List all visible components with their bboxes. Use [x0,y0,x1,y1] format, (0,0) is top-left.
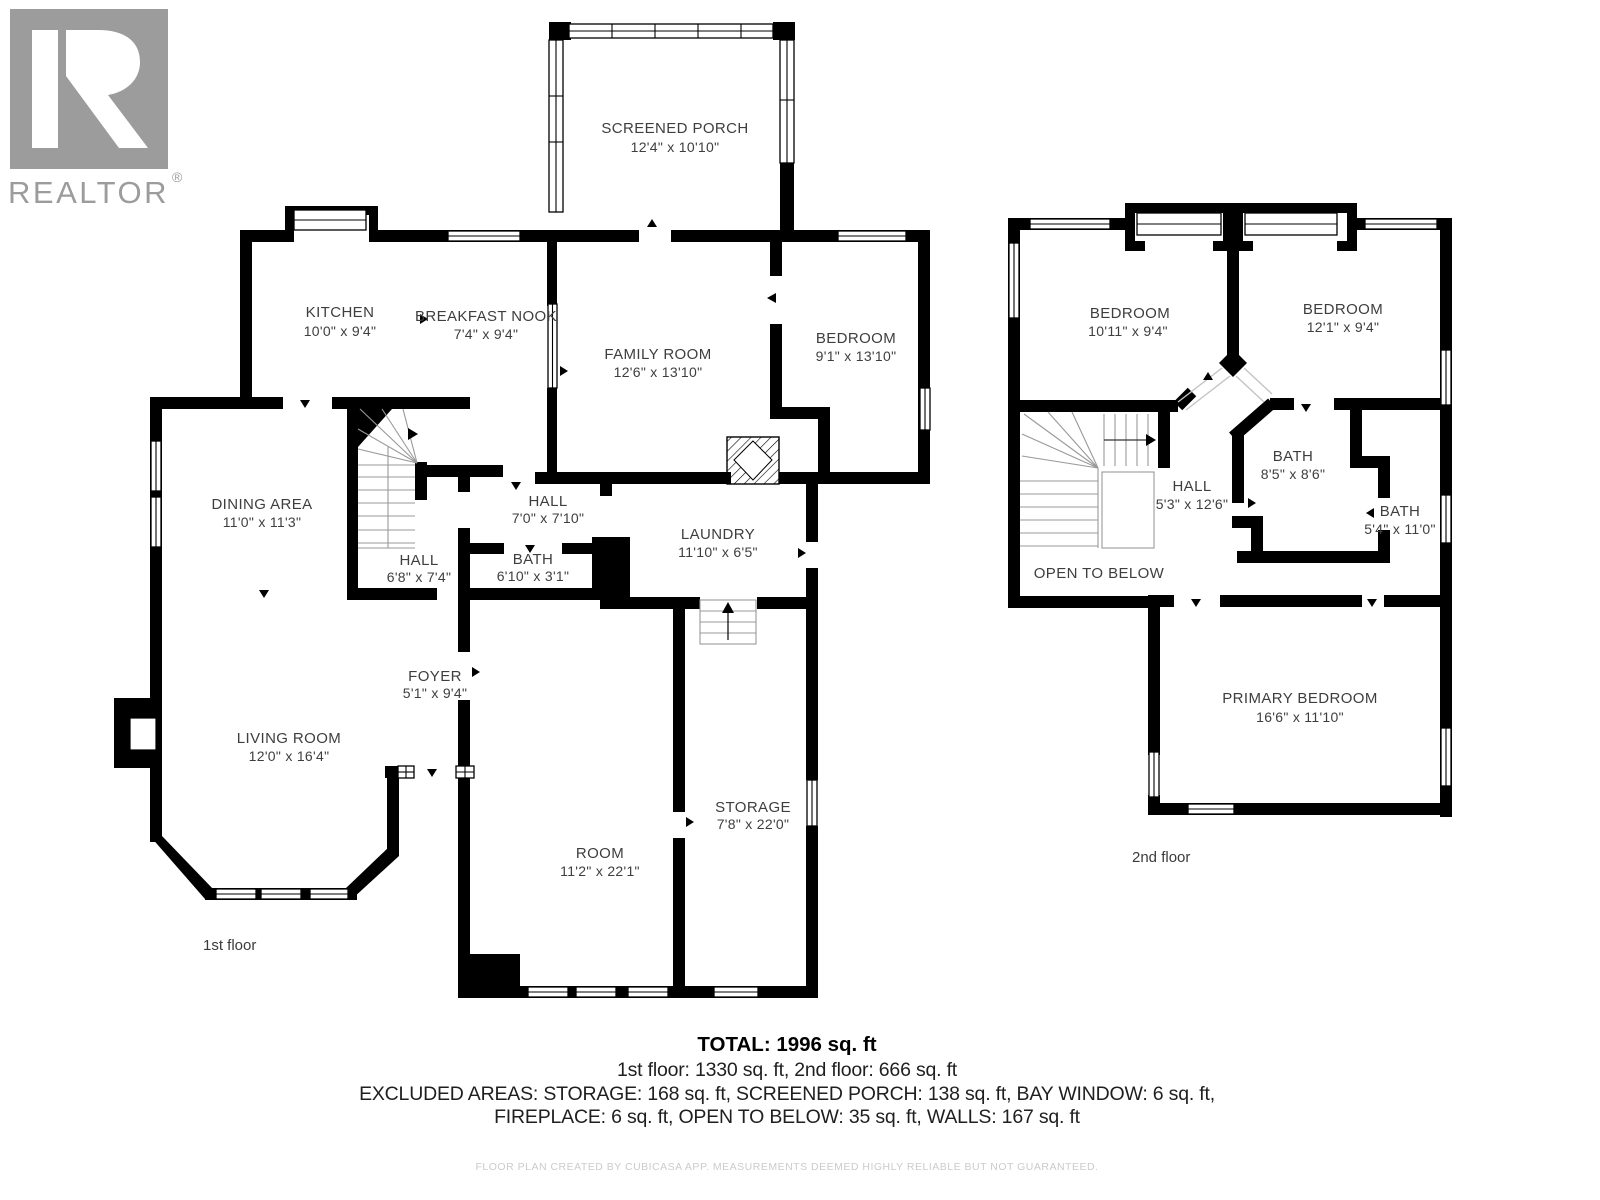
floor-plan-page: REALTOR ® [0,0,1600,1200]
room-label-storage: STORAGE [715,799,791,816]
realtor-logo: REALTOR ® [8,9,183,210]
room-dims-family-room: 12'6" x 13'10" [614,364,703,380]
room-label-living-room: LIVING ROOM [237,730,341,747]
room-dims-bath2-main: 8'5" x 8'6" [1261,466,1326,482]
room-dims-room: 11'2" x 22'1" [560,863,640,879]
room-label-bedroom-1f: BEDROOM [816,330,896,347]
room-dims-hall-center: 7'0" x 7'10" [512,510,585,526]
summary-floors: 1st floor: 1330 sq. ft, 2nd floor: 666 s… [617,1059,958,1081]
room-dims-living-room: 12'0" x 16'4" [249,748,330,764]
floor2-room-labels: BEDROOM 10'11" x 9'4" BEDROOM 12'1" x 9'… [1034,301,1436,866]
summary-excluded-line2: FIREPLACE: 6 sq. ft, OPEN TO BELOW: 35 s… [494,1106,1081,1128]
room-label-open-to-below: OPEN TO BELOW [1034,565,1165,582]
room-label-family-room: FAMILY ROOM [604,346,711,363]
room-label-screened-porch: SCREENED PORCH [601,120,748,137]
room-label-breakfast-nook: BREAKFAST NOOK [415,308,557,325]
room-label-hall2: HALL [1172,478,1211,495]
room-dims-bath2-right: 5'4" x 11'0" [1364,521,1436,537]
summary-total: TOTAL: 1996 sq. ft [697,1033,876,1056]
room-dims-kitchen: 10'0" x 9'4" [304,323,377,339]
floor2-diagonal-openings [1178,368,1272,410]
room-label-bedroom2-left: BEDROOM [1090,305,1170,322]
summary-excluded-line1: EXCLUDED AREAS: STORAGE: 168 sq. ft, SCR… [359,1083,1215,1105]
room-label-laundry: LAUNDRY [681,526,755,543]
room-label-bedroom2-right: BEDROOM [1303,301,1383,318]
room-dims-storage: 7'8" x 22'0" [717,816,790,832]
room-dims-bath-1f: 6'10" x 3'1" [497,568,570,584]
room-label-primary-bedroom: PRIMARY BEDROOM [1222,690,1377,707]
room-dims-breakfast-nook: 7'4" x 9'4" [454,326,519,342]
room-label-room: ROOM [576,845,624,862]
realtor-logo-text: REALTOR [8,175,169,210]
room-label-kitchen: KITCHEN [306,304,375,321]
room-label-dining-area: DINING AREA [211,496,312,513]
room-label-hall-stairs: HALL [399,552,438,569]
floor1-label: 1st floor [203,937,256,954]
room-dims-bedroom2-left: 10'11" x 9'4" [1088,323,1168,339]
room-dims-dining-area: 11'0" x 11'3" [223,514,302,530]
room-dims-hall-stairs: 6'8" x 7'4" [387,569,452,585]
disclaimer-text: FLOOR PLAN CREATED BY CUBICASA APP. MEAS… [476,1161,1099,1173]
laundry-steps-icon [700,600,756,644]
room-label-bath2-main: BATH [1273,448,1314,465]
room-label-bath2-right: BATH [1380,503,1421,520]
room-dims-foyer: 5'1" x 9'4" [403,685,468,701]
room-dims-primary-bedroom: 16'6" x 11'10" [1256,709,1344,725]
room-label-bath-1f: BATH [513,551,554,568]
registered-mark: ® [172,169,183,185]
floor-plan-canvas: REALTOR ® [0,0,1600,1200]
floor1-stairs-icon [358,409,418,548]
room-dims-laundry: 11'10" x 6'5" [678,544,758,560]
floor2-stairs-icon [1020,412,1156,548]
room-dims-screened-porch: 12'4" x 10'10" [631,139,720,155]
area-summary: TOTAL: 1996 sq. ft 1st floor: 1330 sq. f… [359,1033,1215,1173]
floor2-label: 2nd floor [1132,849,1190,866]
room-dims-bedroom-1f: 9'1" x 13'10" [816,348,897,364]
room-dims-bedroom2-right: 12'1" x 9'4" [1307,319,1380,335]
room-label-foyer: FOYER [408,668,462,685]
room-label-hall-center: HALL [528,493,567,510]
room-dims-hall2: 5'3" x 12'6" [1156,496,1229,512]
